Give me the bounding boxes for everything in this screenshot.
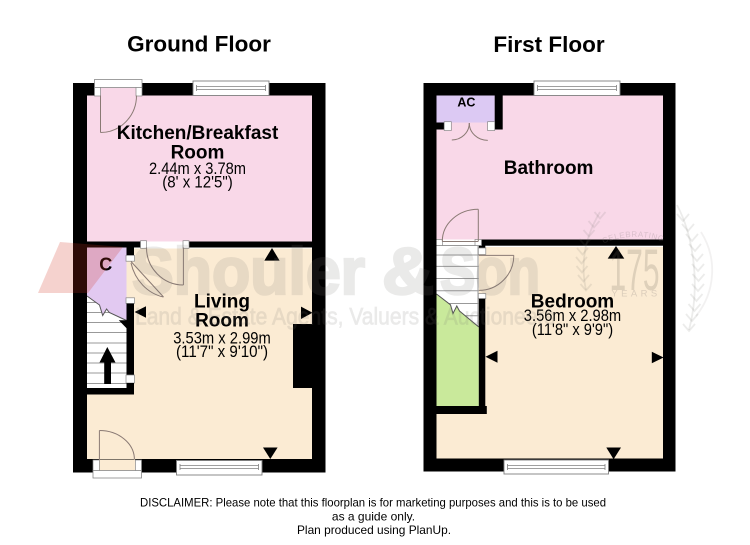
svg-text:Land & Estate Agents, Valuers: Land & Estate Agents, Valuers & Auctione…: [135, 304, 555, 331]
svg-text:First Floor: First Floor: [493, 32, 604, 57]
svg-text:YEARS: YEARS: [611, 289, 660, 300]
svg-text:DISCLAIMER: Please note that t: DISCLAIMER: Please note that this floorp…: [140, 496, 606, 510]
svg-text:Kitchen/Breakfast: Kitchen/Breakfast: [117, 123, 279, 144]
svg-text:as a guide only.: as a guide only.: [332, 510, 415, 524]
svg-text:AC: AC: [457, 95, 475, 109]
svg-text:Plan produced using PlanUp.: Plan produced using PlanUp.: [297, 523, 451, 537]
svg-text:&: &: [382, 234, 434, 308]
svg-text:Shouler: Shouler: [132, 234, 365, 308]
svg-text:Son: Son: [440, 234, 540, 308]
svg-text:Bathroom: Bathroom: [504, 158, 594, 179]
svg-text:(11'7" x 9'10"): (11'7" x 9'10"): [176, 343, 268, 361]
svg-text:Ground Floor: Ground Floor: [127, 32, 271, 57]
svg-text:(8' x 12'5"): (8' x 12'5"): [162, 174, 233, 192]
